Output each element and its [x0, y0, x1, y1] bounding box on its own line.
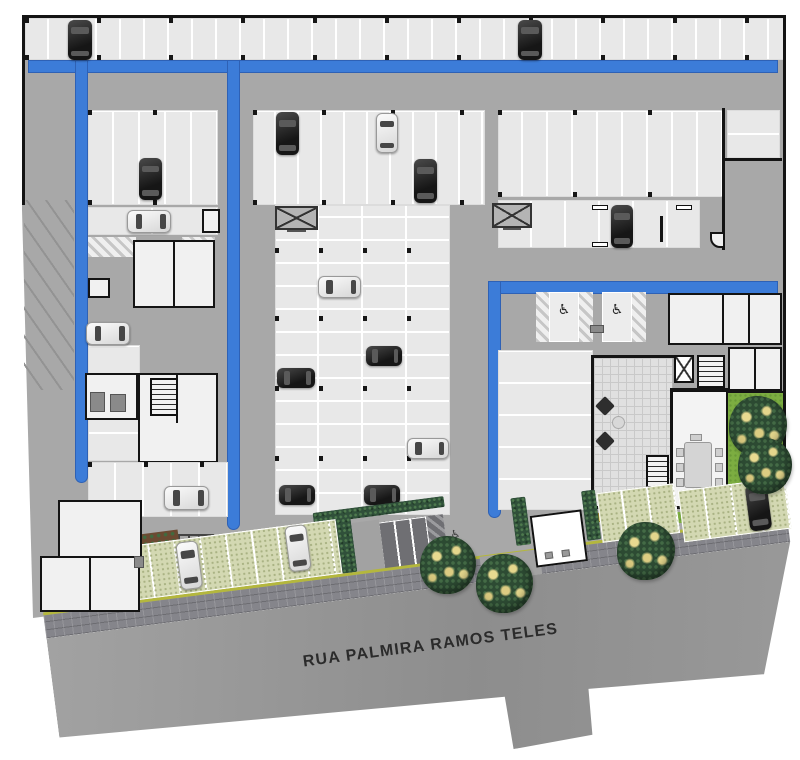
tree-icon: [420, 536, 476, 594]
equipment-box: [134, 556, 144, 568]
plan-overlay-layer: [0, 0, 800, 760]
annex-building: [58, 500, 142, 558]
annex-building: [40, 556, 140, 612]
tree-icon: [476, 554, 533, 613]
tree-icon: [738, 438, 792, 494]
site-plan-page: ♿♿ ♿RUA PALMIRA RAMOS TELES: [0, 0, 800, 760]
tree-icon: [617, 522, 675, 580]
